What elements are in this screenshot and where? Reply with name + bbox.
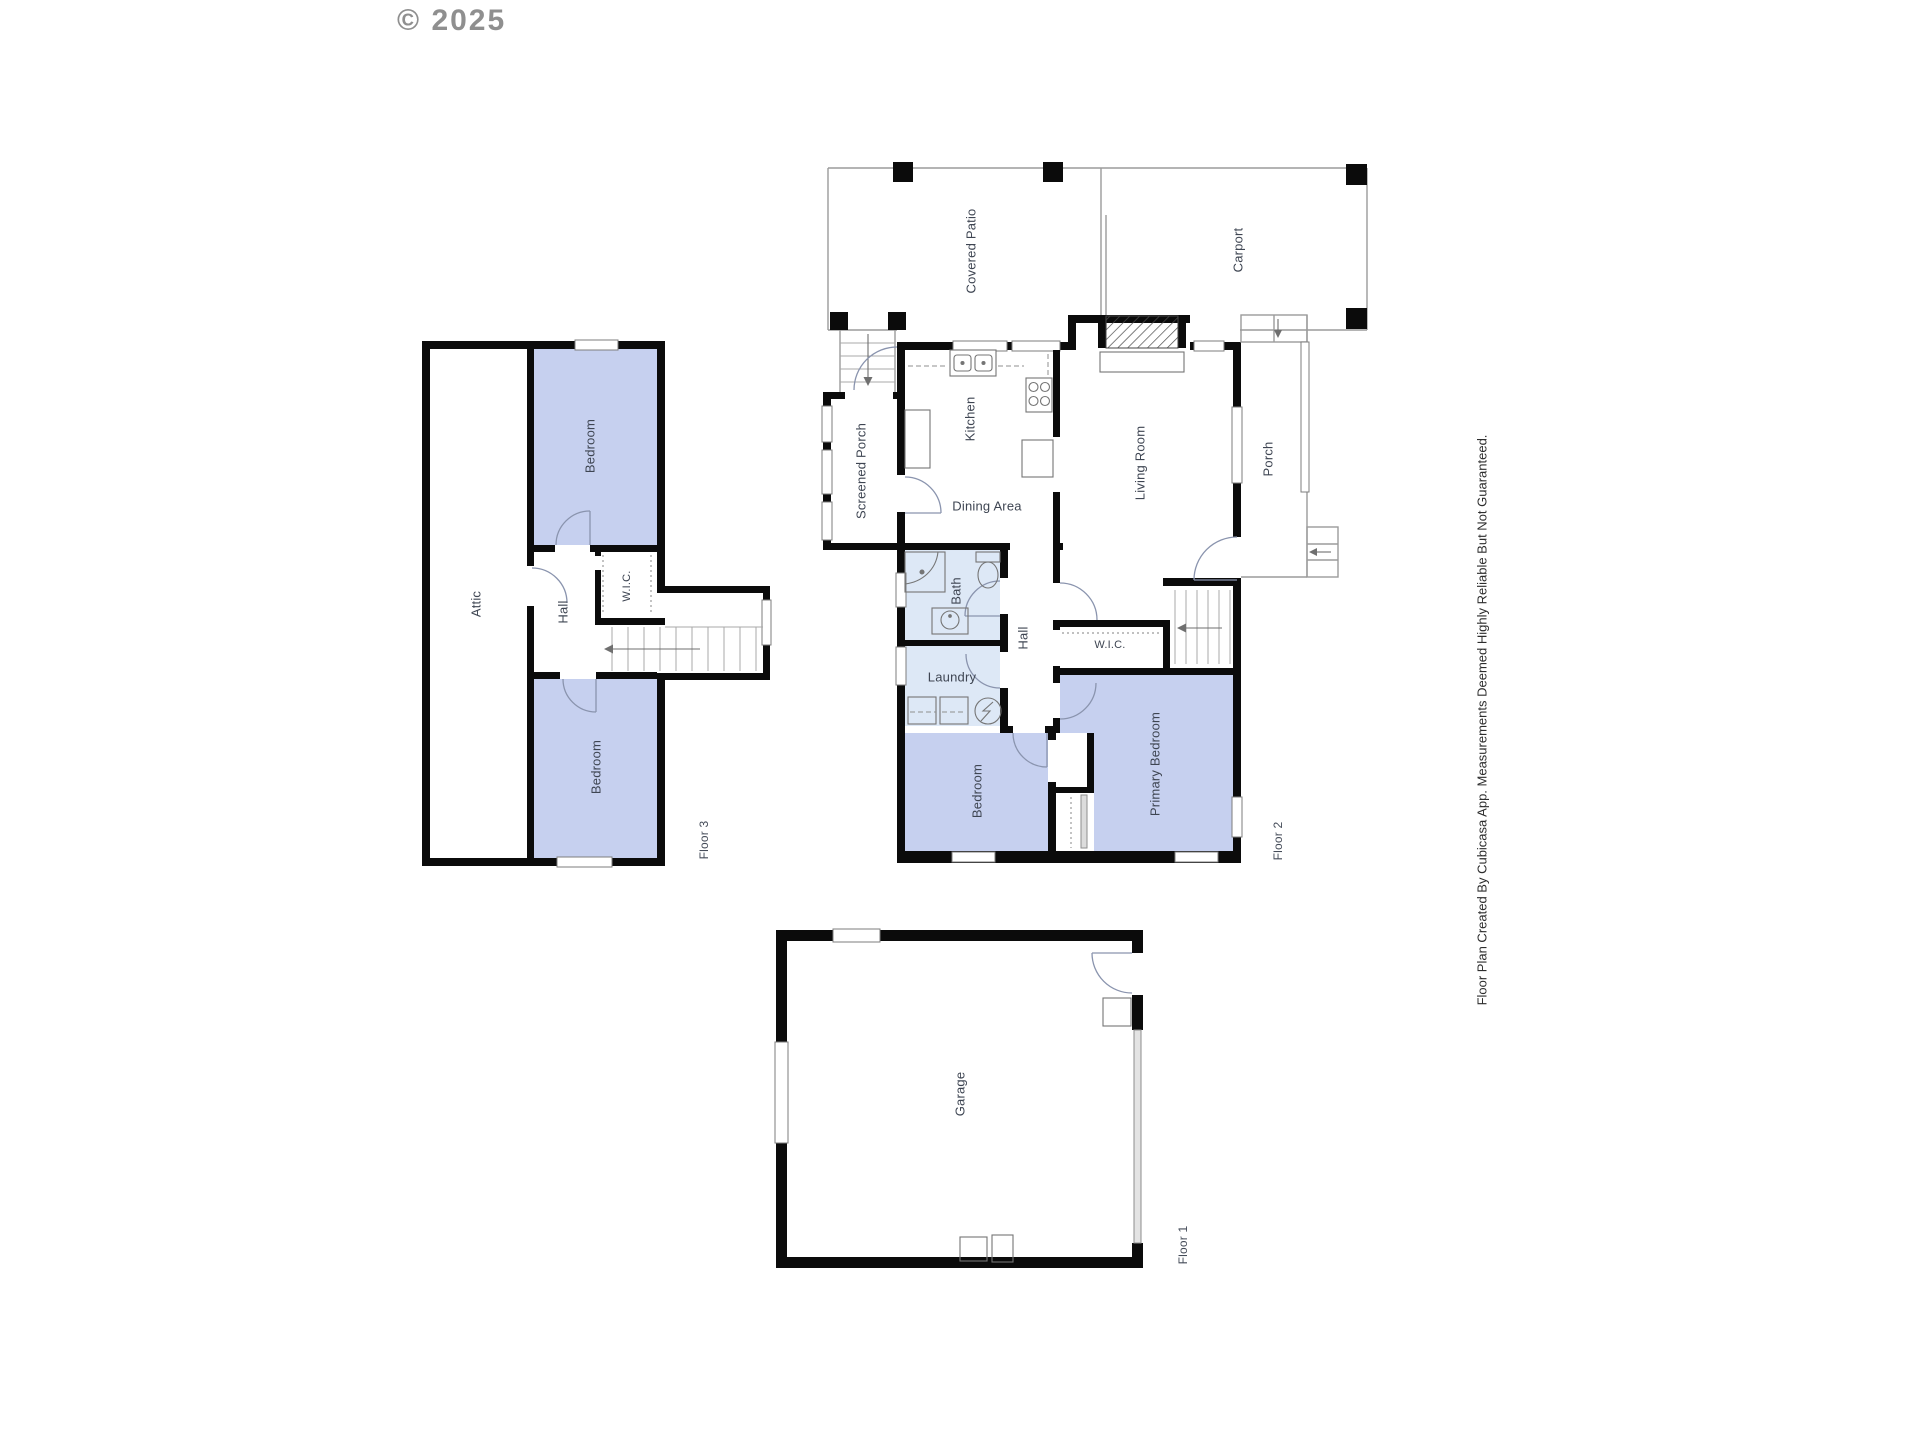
floor1-label: Floor 1: [1176, 1226, 1190, 1265]
room-label-kitchen: Kitchen: [963, 397, 978, 442]
primary-bedroom-fill: [1094, 733, 1233, 851]
room-label-hall-floor3: Hall: [556, 600, 571, 623]
carport-post: [1346, 308, 1367, 329]
room-label-covered-patio: Covered Patio: [964, 209, 979, 294]
room-label-attic: Attic: [469, 591, 484, 617]
room-label-living-room: Living Room: [1133, 426, 1148, 500]
room-label-hall-floor2: Hall: [1016, 626, 1031, 649]
floor2-label: Floor 2: [1271, 822, 1285, 861]
room-label-bedroom-floor2: Bedroom: [970, 764, 985, 818]
porch-screen: [1301, 342, 1309, 492]
laundry-fill: [905, 646, 1000, 726]
room-label-carport: Carport: [1231, 228, 1246, 273]
copyright-watermark: © 2025: [397, 4, 506, 38]
kitchen-sink: [950, 350, 996, 376]
room-label-wic-floor3: W.I.C.: [621, 570, 633, 601]
furnace: [1103, 998, 1131, 1026]
carport-post: [1346, 164, 1367, 185]
room-label-wic-floor2: W.I.C.: [1094, 639, 1125, 651]
fireplace: [1106, 316, 1178, 348]
porch-outline: [1241, 315, 1338, 577]
closet-slider-door: [1081, 795, 1087, 848]
room-label-screened-porch: Screened Porch: [854, 423, 869, 519]
hearth: [1100, 352, 1184, 372]
covered-patio-carport-outline: [828, 162, 1367, 330]
kitchen-fixtures: [905, 350, 1053, 477]
floor-plan-page: © 2025 Attic Bedroom Hall W.I.C. Bedroom…: [0, 0, 1920, 1440]
room-label-bedroom-upper: Bedroom: [583, 419, 598, 473]
floor2-plan: [822, 162, 1367, 863]
room-label-primary-bedroom: Primary Bedroom: [1148, 712, 1163, 816]
patio-entry-steps: [840, 330, 897, 392]
kitchen-cabinet: [1022, 440, 1053, 477]
floor3-stairs: [604, 627, 763, 671]
patio-post: [830, 312, 848, 330]
room-label-bath: Bath: [949, 577, 964, 605]
floor2-stairs: [1175, 590, 1230, 664]
room-label-porch: Porch: [1261, 442, 1276, 477]
disclaimer-text: Floor Plan Created By Cubicasa App. Meas…: [1475, 435, 1490, 1006]
room-label-dining-area: Dining Area: [952, 499, 1021, 514]
floor3-label: Floor 3: [697, 821, 711, 860]
floor-plan-drawing: [0, 0, 1920, 1440]
room-label-bedroom-lower: Bedroom: [589, 740, 604, 794]
room-label-garage: Garage: [953, 1072, 968, 1117]
room-label-laundry: Laundry: [928, 670, 976, 685]
patio-post: [1043, 162, 1063, 182]
garage-vehicle-door: [1134, 1030, 1141, 1243]
patio-post: [888, 312, 906, 330]
refrigerator: [905, 410, 930, 468]
patio-post: [893, 162, 913, 182]
primary-bedroom-fill: [1060, 675, 1233, 733]
